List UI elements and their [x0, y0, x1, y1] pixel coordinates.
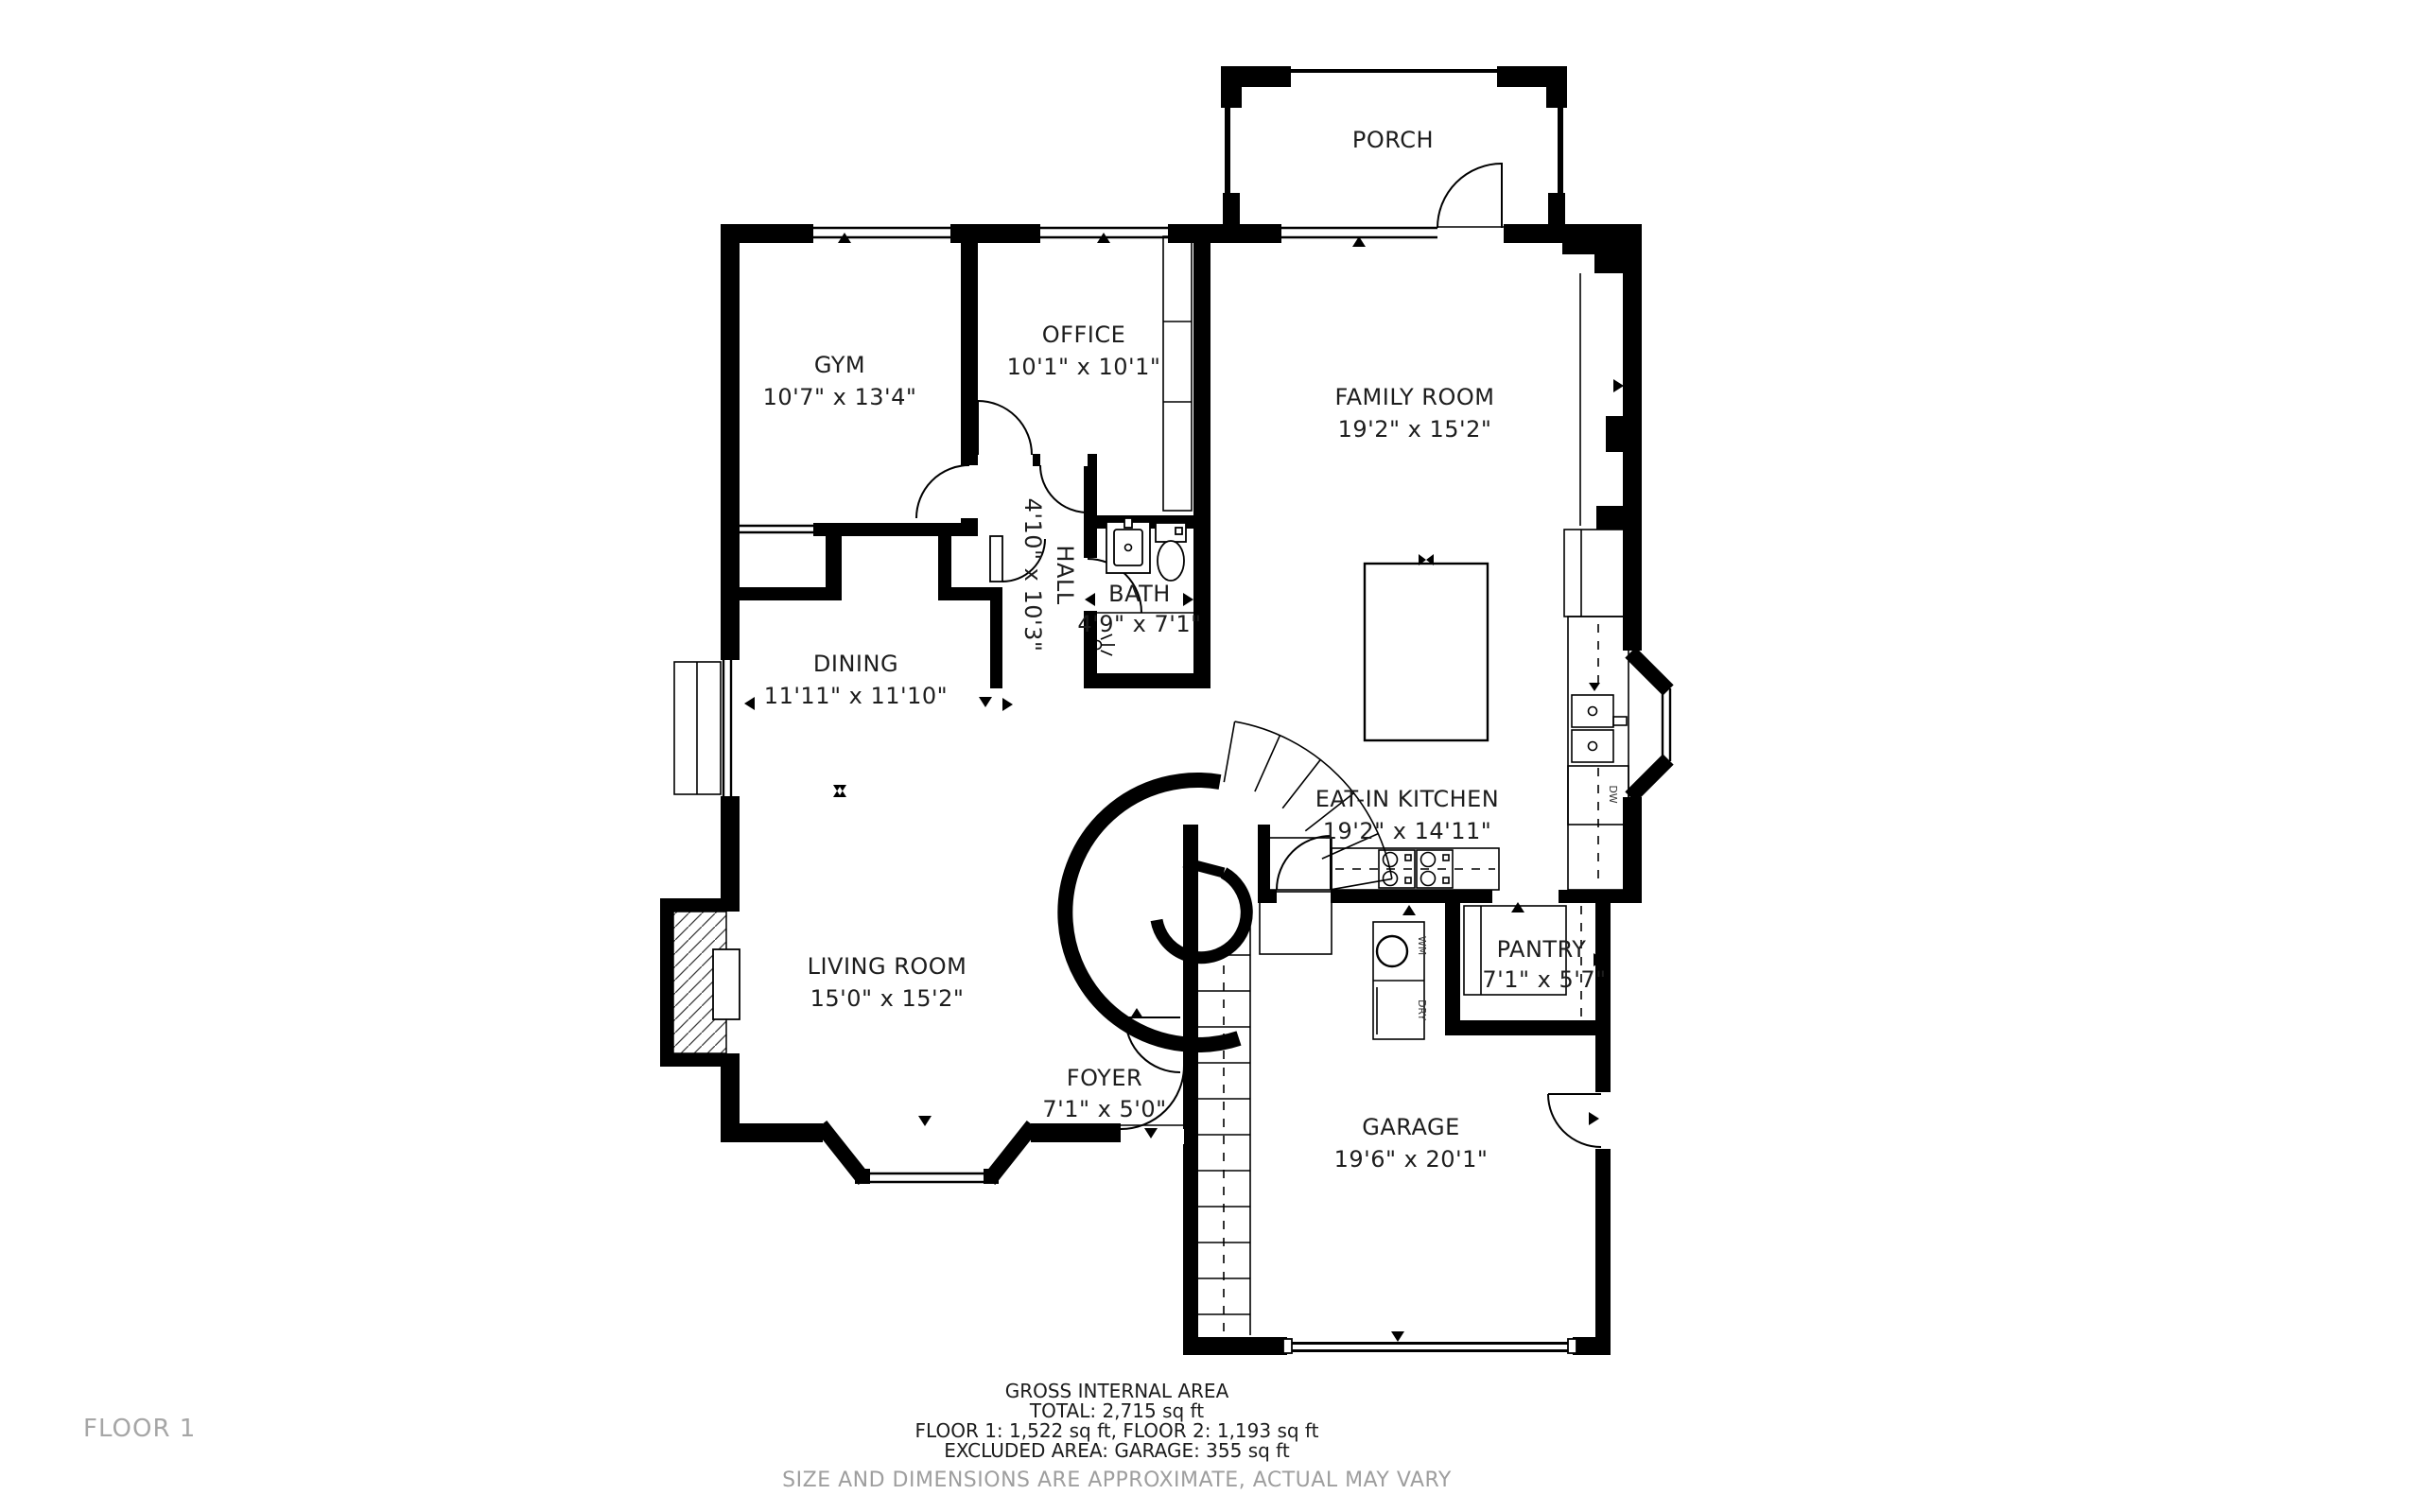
room-dims-office: 10'1" x 10'1" [1007, 354, 1161, 380]
room-label-office: OFFICE [1042, 322, 1126, 348]
kitchen-island [1365, 554, 1488, 740]
room-label-porch: PORCH [1352, 127, 1434, 153]
room-dims-pantry: 7'1" x 5'7" [1482, 966, 1606, 993]
room-label-kitchen: EAT-IN KITCHEN [1315, 786, 1500, 812]
floor-plan-drawing: PORCH GYM 10'7" x 13'4" OFFICE 10'1" x 1… [0, 0, 2421, 1512]
room-label-living-room: LIVING ROOM [808, 953, 967, 980]
area-summary: GROSS INTERNAL AREA TOTAL: 2,715 sq ft F… [739, 1382, 1495, 1492]
office-bookshelf [1163, 236, 1192, 511]
dimensions-disclaimer: SIZE AND DIMENSIONS ARE APPROXIMATE, ACT… [739, 1469, 1495, 1492]
total-area: TOTAL: 2,715 sq ft [739, 1401, 1495, 1421]
floor-areas: FLOOR 1: 1,522 sq ft, FLOOR 2: 1,193 sq … [739, 1421, 1495, 1441]
room-dims-kitchen: 19'2" x 14'11" [1323, 818, 1492, 844]
curved-staircase [1065, 721, 1392, 1045]
room-label-hall: HALL [1052, 545, 1078, 604]
room-dims-garage: 19'6" x 20'1" [1334, 1146, 1489, 1173]
floor-plan-page: PORCH GYM 10'7" x 13'4" OFFICE 10'1" x 1… [0, 0, 2421, 1512]
dishwasher-label: DW [1607, 785, 1619, 803]
dryer-label: DRY [1416, 999, 1428, 1020]
room-label-gym: GYM [814, 352, 865, 378]
doors [916, 163, 1611, 1147]
room-dims-foyer: 7'1" x 5'0" [1042, 1096, 1166, 1122]
room-dims-gym: 10'7" x 13'4" [763, 384, 917, 410]
kitchen-counter-cooktop [1332, 848, 1499, 890]
kitchen-right-counter [1564, 530, 1629, 890]
excluded-area: EXCLUDED AREA: GARAGE: 355 sq ft [739, 1441, 1495, 1461]
room-label-pantry: PANTRY [1497, 936, 1587, 963]
straight-staircase [1198, 838, 1332, 1335]
fireplace [660, 898, 740, 1067]
room-label-foyer: FOYER [1067, 1065, 1142, 1091]
room-label-dining: DINING [813, 651, 898, 677]
room-dims-living-room: 15'0" x 15'2" [810, 985, 965, 1012]
room-label-family-room: FAMILY ROOM [1335, 384, 1495, 410]
room-dims-bath: 4'9" x 7'1" [1077, 611, 1201, 637]
floor-number-label: FLOOR 1 [83, 1415, 196, 1443]
room-dims-family-room: 19'2" x 15'2" [1338, 416, 1492, 443]
room-label-garage: GARAGE [1362, 1114, 1459, 1140]
washer-label: WM [1416, 936, 1428, 955]
room-dims-hall: 4'10" x 10'3" [1019, 498, 1046, 652]
room-dims-dining: 11'11" x 11'10" [764, 683, 948, 709]
room-label-bath: BATH [1108, 581, 1171, 607]
gross-internal-area-title: GROSS INTERNAL AREA [739, 1382, 1495, 1401]
